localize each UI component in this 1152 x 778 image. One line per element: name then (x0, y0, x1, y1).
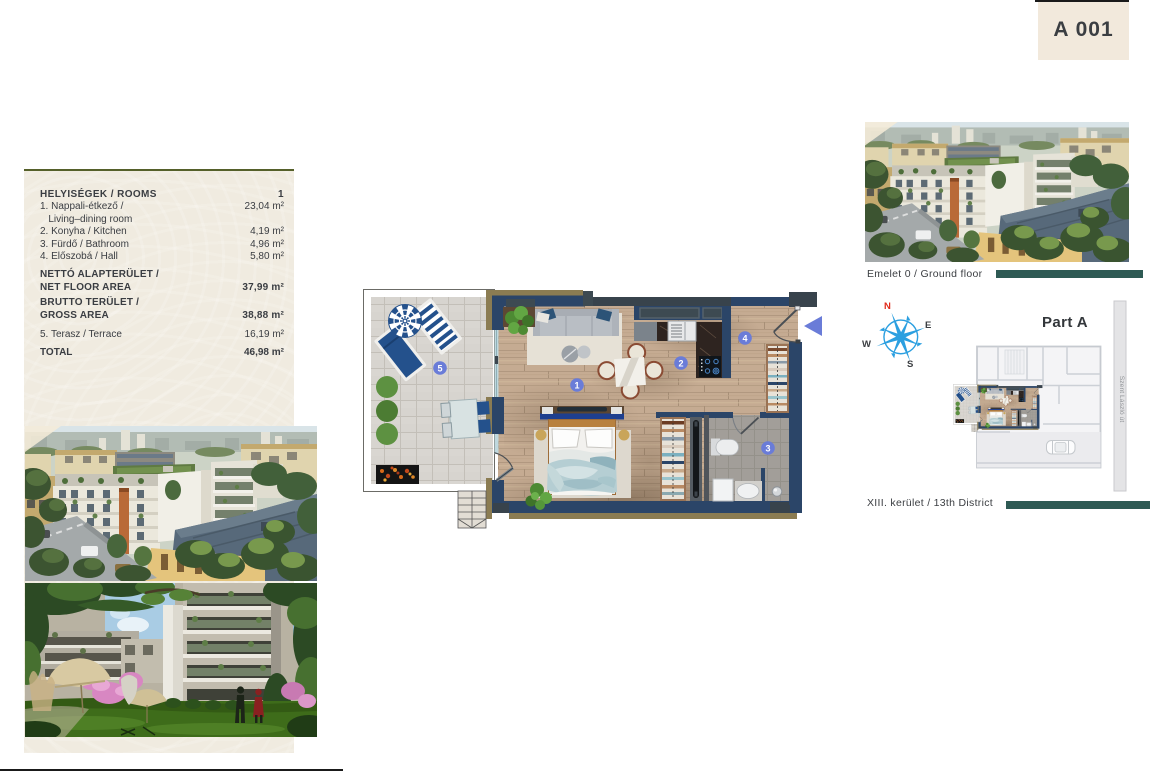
svg-text:5: 5 (437, 363, 442, 373)
svg-text:3: 3 (765, 443, 770, 453)
svg-text:W: W (862, 339, 871, 350)
svg-text:Szent László út: Szent László út (1118, 376, 1125, 423)
svg-text:2: 2 (678, 358, 683, 368)
svg-text:4: 4 (742, 333, 747, 343)
svg-text:E: E (925, 320, 931, 331)
svg-text:1: 1 (574, 380, 579, 390)
svg-text:S: S (907, 359, 913, 370)
svg-text:N: N (884, 301, 891, 312)
